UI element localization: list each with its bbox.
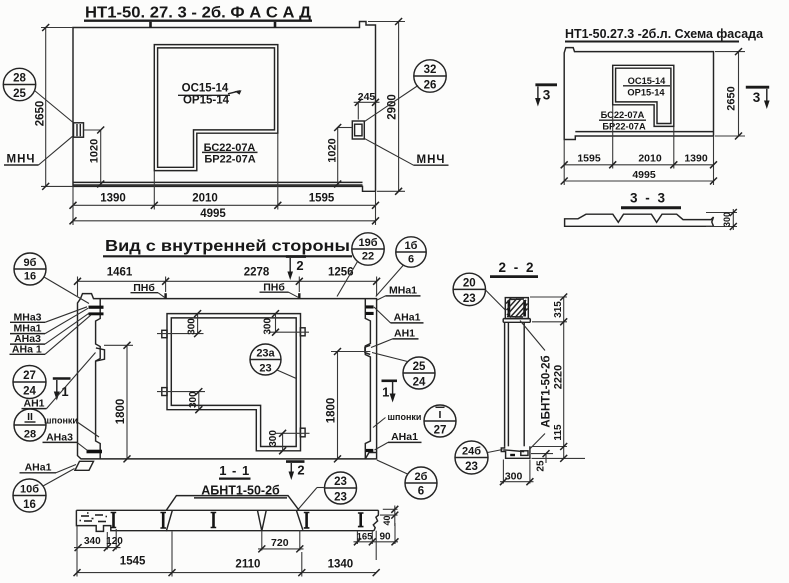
svg-text:120: 120 [106,536,123,547]
svg-text:300: 300 [268,430,279,447]
svg-text:БС22-07А: БС22-07А [601,110,645,120]
svg-text:3: 3 [753,90,761,105]
svg-text:I: I [439,409,442,421]
svg-text:1340: 1340 [328,559,354,571]
svg-text:23: 23 [334,492,347,504]
svg-text:40: 40 [382,515,392,525]
svg-text:4995: 4995 [200,208,226,220]
svg-text:шпонки: шпонки [388,412,422,422]
svg-text:1595: 1595 [577,153,601,165]
svg-text:1390: 1390 [684,153,708,165]
svg-text:23а: 23а [256,348,275,360]
svg-text:27: 27 [434,425,447,437]
svg-text:20: 20 [463,277,476,289]
svg-text:1595: 1595 [309,193,335,205]
svg-text:1800: 1800 [115,399,127,425]
svg-text:27: 27 [23,370,36,382]
svg-text:НТ1-50. 27. 3 - 2б. Ф А С А Д: НТ1-50. 27. 3 - 2б. Ф А С А Д [85,5,311,22]
svg-text:1020: 1020 [327,138,339,162]
svg-text:шпонки: шпонки [44,416,78,426]
svg-text:115: 115 [553,424,564,441]
svg-text:ОС15-14: ОС15-14 [628,76,667,86]
svg-text:16: 16 [24,271,36,283]
svg-text:МНа3: МНа3 [13,311,41,323]
svg-text:II: II [27,411,33,423]
svg-text:1: 1 [382,385,389,400]
svg-text:2650: 2650 [726,86,738,110]
svg-text:23: 23 [463,293,476,305]
svg-text:300: 300 [187,318,198,335]
svg-text:300: 300 [263,318,274,335]
svg-text:24: 24 [413,377,426,389]
svg-text:ОР15-14: ОР15-14 [183,95,230,107]
svg-text:АН1: АН1 [23,397,44,409]
svg-text:19б: 19б [358,237,377,249]
svg-text:2650: 2650 [35,101,47,127]
svg-text:1 - 1: 1 - 1 [219,463,250,478]
svg-text:2278: 2278 [244,267,270,279]
svg-text:24б: 24б [462,446,481,458]
svg-text:24: 24 [23,386,36,398]
svg-text:2220: 2220 [552,365,564,389]
svg-text:2010: 2010 [192,193,218,205]
svg-text:22: 22 [362,251,374,263]
svg-text:БР22-07А: БР22-07А [204,153,255,165]
svg-text:1: 1 [61,384,68,399]
svg-text:28: 28 [13,73,26,85]
svg-text:10б: 10б [20,484,39,496]
svg-text:1800: 1800 [326,398,338,424]
svg-text:Вид с внутренней стороны: Вид с внутренней стороны [105,238,350,255]
svg-text:2: 2 [297,463,304,478]
svg-text:2900: 2900 [387,94,399,120]
svg-text:МНЧ: МНЧ [417,154,446,166]
svg-text:300: 300 [505,471,523,483]
svg-text:26: 26 [424,80,437,92]
svg-text:6: 6 [418,486,424,498]
svg-text:НТ1-50.27.3 -2б.л. Схема фасад: НТ1-50.27.3 -2б.л. Схема фасада [565,26,764,41]
svg-text:ОС15-14: ОС15-14 [182,83,229,95]
svg-text:1461: 1461 [107,267,133,279]
svg-text:АНа 1: АНа 1 [12,343,42,355]
svg-text:1б: 1б [405,240,418,252]
svg-text:АНа1: АНа1 [25,462,52,474]
svg-text:1256: 1256 [328,267,354,279]
svg-text:1020: 1020 [89,139,101,163]
svg-text:16: 16 [23,499,36,511]
svg-text:28: 28 [24,429,36,441]
svg-text:БР22-07А: БР22-07А [602,122,646,132]
svg-text:1390: 1390 [100,193,126,205]
svg-text:3 - 3: 3 - 3 [630,191,667,206]
svg-text:25: 25 [413,361,426,373]
svg-text:23: 23 [465,461,478,473]
svg-text:2 - 2: 2 - 2 [498,260,535,275]
svg-text:3: 3 [543,88,551,103]
svg-text:32: 32 [424,64,437,76]
svg-text:АН1: АН1 [394,328,415,340]
svg-text:ОР15-14: ОР15-14 [627,87,665,97]
svg-text:2: 2 [296,258,303,273]
svg-text:25: 25 [13,88,26,100]
svg-text:23: 23 [259,363,271,375]
svg-text:2б: 2б [415,471,428,483]
svg-text:АНа1: АНа1 [391,431,418,443]
svg-text:720: 720 [271,537,289,549]
svg-text:23: 23 [334,476,347,488]
svg-text:МНЧ: МНЧ [7,154,36,166]
svg-text:300: 300 [722,212,732,227]
svg-text:МНа1: МНа1 [389,284,417,296]
svg-text:2110: 2110 [235,559,260,571]
svg-text:1545: 1545 [120,556,146,568]
svg-text:25: 25 [536,460,547,472]
svg-text:6: 6 [408,254,414,266]
svg-text:315: 315 [553,301,564,318]
svg-text:300: 300 [188,391,199,408]
svg-text:2010: 2010 [638,153,662,165]
svg-text:90: 90 [379,532,391,543]
svg-text:9б: 9б [24,257,37,269]
svg-text:АНа1: АНа1 [394,311,421,323]
svg-text:4995: 4995 [632,169,656,181]
svg-text:АНа3: АНа3 [46,431,73,443]
svg-text:АБНТ1-50-2б: АБНТ1-50-2б [540,355,552,427]
svg-text:340: 340 [84,536,101,547]
svg-text:165: 165 [357,532,374,543]
